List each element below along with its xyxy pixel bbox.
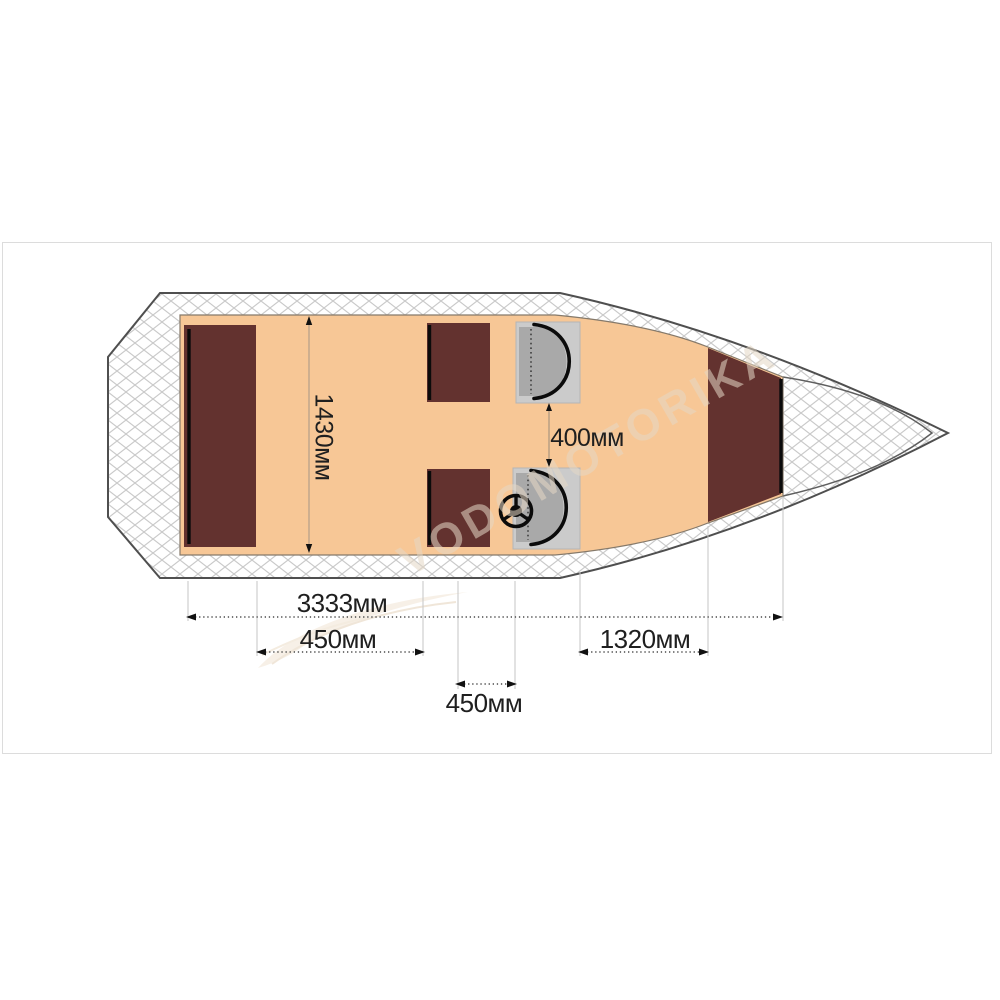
boat-layout-diagram: VODOMOTORIKA 1430мм 400мм [0,0,1000,1000]
dim-label-1430: 1430мм [309,394,337,481]
dim-label-1320: 1320мм [600,624,691,654]
dim-label-400: 400мм [550,424,624,452]
dim-label-3333: 3333мм [297,588,388,618]
stern-bench [184,325,256,547]
diagram-svg: VODOMOTORIKA 1430мм 400мм [0,0,1000,1000]
passenger-seat [516,322,580,403]
dim-label-450a: 450мм [300,624,377,654]
dim-label-450b: 450мм [446,688,523,718]
mid-bench-upper [427,323,490,402]
